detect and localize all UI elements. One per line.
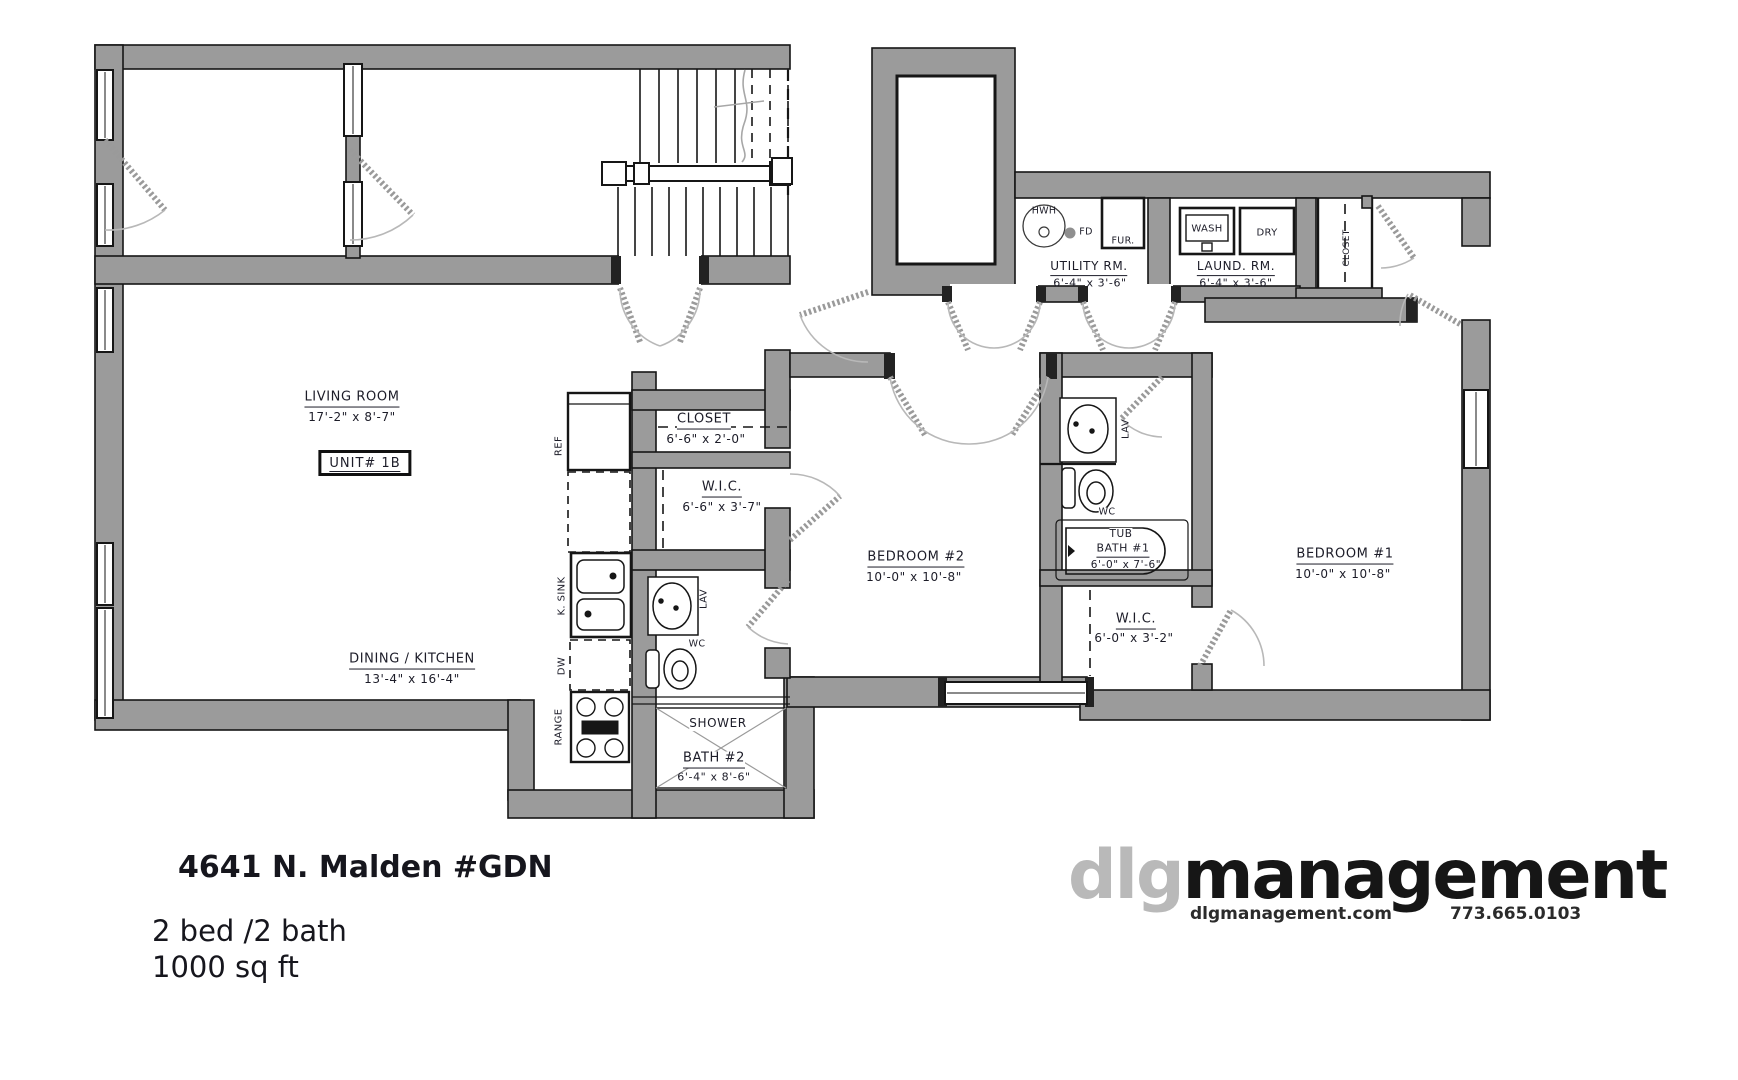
- shower-label: SHOWER: [689, 717, 746, 731]
- bed-bath-count: 2 bed /2 bath: [152, 914, 347, 948]
- bedroom2-label: BEDROOM #2: [867, 551, 964, 568]
- closet-main-dims: 6'-6" x 2'-0": [666, 433, 745, 447]
- bedroom1-label: BEDROOM #1: [1296, 548, 1393, 565]
- wic-bedroom1-dims: 6'-0" x 3'-2": [1094, 632, 1173, 646]
- utility-room-label: UTILITY RM.: [1050, 260, 1127, 276]
- bedroom2-dims: 10'-0" x 10'-8": [866, 571, 962, 585]
- floor-drain-label: FD: [1079, 228, 1092, 239]
- square-footage: 1000 sq ft: [152, 950, 299, 984]
- furnace-label: FUR.: [1112, 237, 1135, 248]
- utility-room-dims: 6'-4" x 3'-6": [1053, 278, 1126, 291]
- bath2-label: BATH #2: [683, 752, 745, 769]
- entry-stoop: [897, 76, 995, 264]
- unit-number-box: UNIT# 1B: [318, 450, 411, 476]
- logo-prefix: dlg: [1068, 836, 1183, 915]
- bath2-wc-label: WC: [689, 640, 706, 651]
- bath2-lav-label: LAV: [698, 589, 710, 609]
- logo-website: dlgmanagement.com: [1190, 904, 1392, 924]
- floor-plan-page: LIVING ROOM 17'-2" x 8'-7" UNIT# 1B DINI…: [0, 0, 1738, 1080]
- bath2-dims: 6'-4" x 8'-6": [677, 772, 750, 785]
- laundry-room-dims: 6'-4" x 3'-6": [1199, 278, 1272, 291]
- bath1-wc-label: WC: [1099, 508, 1116, 519]
- bath1-label: BATH #1: [1096, 543, 1149, 558]
- dishwasher-label: DW: [556, 657, 568, 675]
- hwh-label: HWH: [1032, 207, 1057, 218]
- kitchen-fixtures: [568, 393, 631, 762]
- living-room-dims: 17'-2" x 8'-7": [308, 411, 396, 425]
- bath1-dims: 6'-0" x 7'-6": [1091, 559, 1161, 571]
- unit-number-label: UNIT# 1B: [329, 456, 400, 472]
- dining-kitchen-dims: 13'-4" x 16'-4": [364, 673, 460, 687]
- dining-kitchen-label: DINING / KITCHEN: [349, 653, 475, 670]
- logo-wordmark: dlgmanagement: [1068, 842, 1666, 910]
- ref-label: REF: [553, 436, 565, 456]
- wic-main-dims: 6'-6" x 3'-7": [682, 501, 761, 515]
- range-label: RANGE: [553, 709, 565, 746]
- washer-label: WASH: [1191, 223, 1222, 235]
- bedroom1-dims: 10'-0" x 10'-8": [1295, 568, 1391, 582]
- dlg-management-logo: dlgmanagement dlgmanagement.com 773.665.…: [1068, 842, 1666, 924]
- living-room-label: LIVING ROOM: [304, 391, 399, 408]
- tub-label: TUB: [1109, 528, 1132, 540]
- kitchen-sink-label: K. SINK: [556, 576, 568, 615]
- closet-entry-label: CLOSET: [1342, 229, 1352, 266]
- wic-bedroom1-label: W.I.C.: [1116, 613, 1156, 630]
- laundry-room-label: LAUND. RM.: [1197, 260, 1275, 276]
- logo-phone: 773.665.0103: [1450, 904, 1581, 924]
- property-address: 4641 N. Malden #GDN: [178, 850, 553, 885]
- stairs: [602, 69, 792, 256]
- dryer-label: DRY: [1256, 227, 1277, 239]
- closet-main-label: CLOSET: [677, 413, 731, 430]
- wic-main-label: W.I.C.: [702, 481, 742, 498]
- bath1-lav-label: LAV: [1120, 419, 1132, 439]
